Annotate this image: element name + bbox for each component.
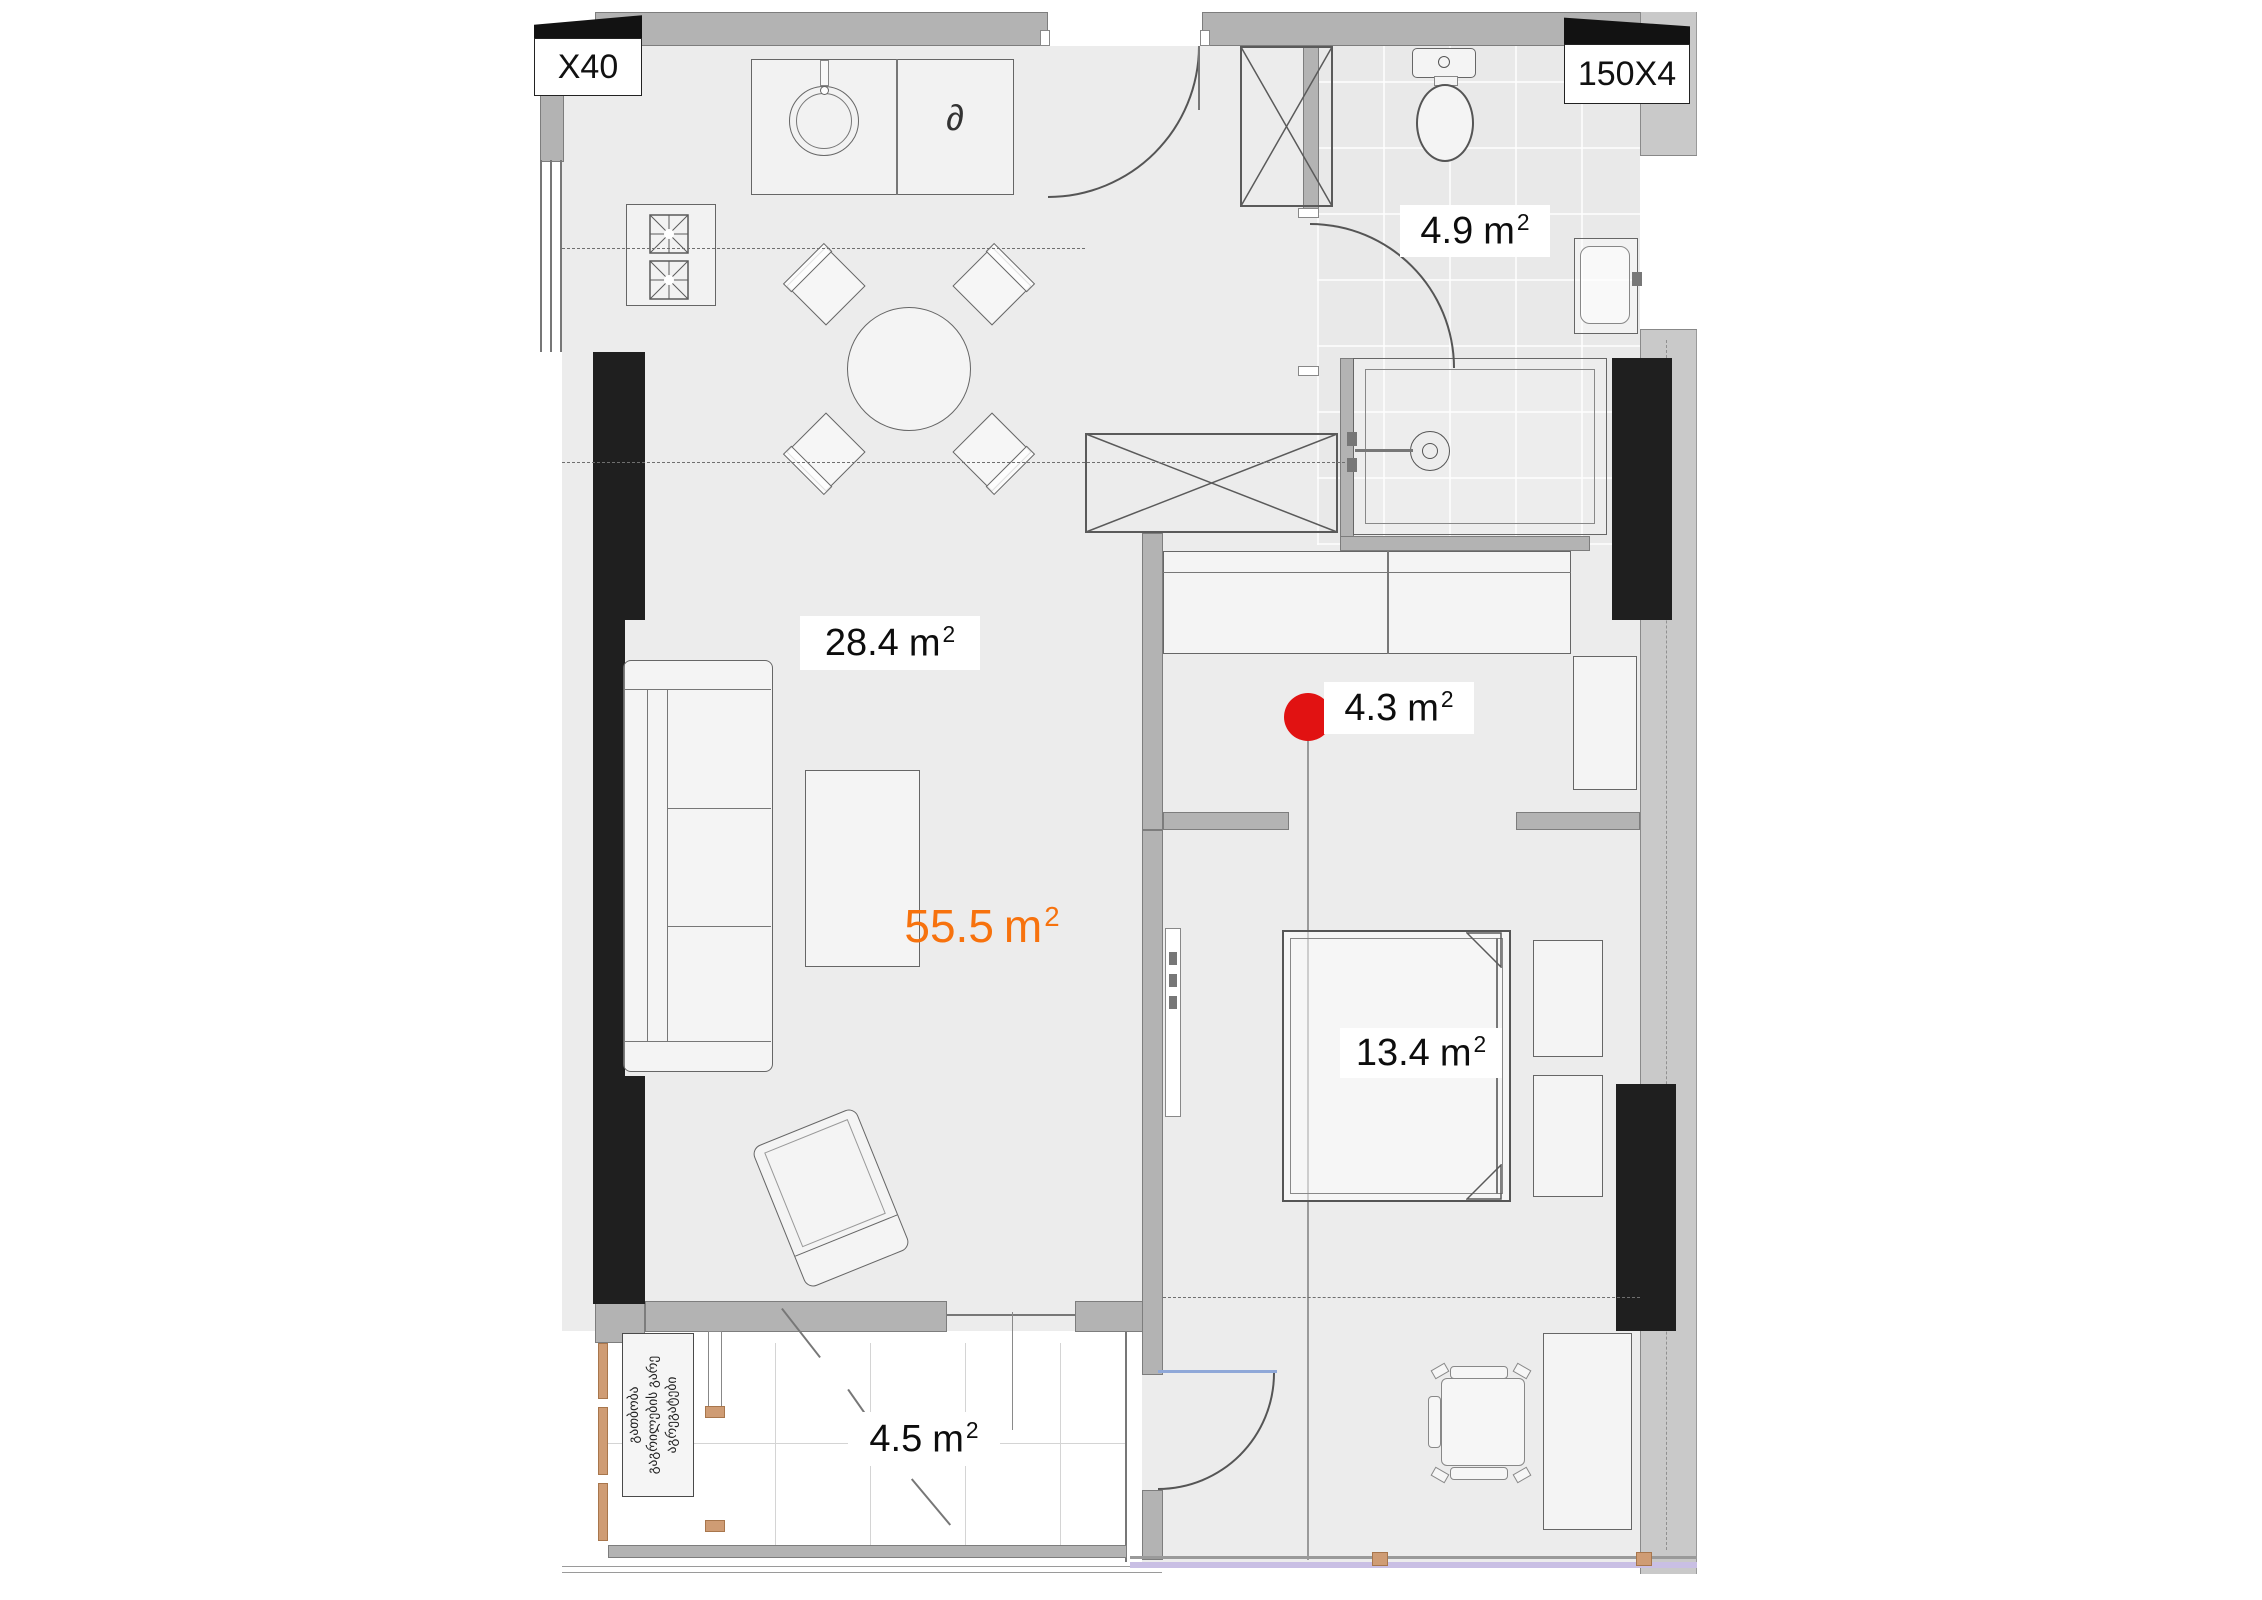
- wood-fill: [1372, 1552, 1388, 1566]
- balcony-note-text: გათბობა გაგრილების გარე აგრეგატები: [625, 1336, 691, 1494]
- area-unit: m2: [932, 1417, 978, 1462]
- room-label-living: 28.4 m2: [800, 616, 980, 670]
- unit-symbol: m: [1004, 900, 1042, 952]
- builtin-closet-icon: [1085, 433, 1338, 533]
- office-chair-seat: [1441, 1378, 1525, 1466]
- window-label-left: X40: [534, 38, 642, 96]
- area-unit: m2: [1407, 686, 1453, 731]
- area-value: 4.5: [869, 1418, 922, 1461]
- unit-symbol: m: [1483, 210, 1515, 252]
- wall-bedroom-left-lower: [1142, 1490, 1163, 1560]
- unit-symbol: m: [909, 622, 941, 664]
- area-unit: m2: [1440, 1031, 1486, 1076]
- shower-tray-inner: [1365, 369, 1595, 524]
- wall-hall-left: [1142, 533, 1163, 830]
- note-line: აგრეგატები: [663, 1336, 682, 1494]
- balcony-grid-line: [1060, 1343, 1061, 1545]
- wood-fill: [1636, 1552, 1652, 1566]
- window-label-right-text: 150X4: [1578, 55, 1676, 94]
- sofa-line: [667, 808, 771, 809]
- tv-mark: [1169, 952, 1177, 965]
- washbasin-tap-icon: [1632, 272, 1642, 286]
- wood-fill: [598, 1407, 608, 1475]
- bedroom-center-dashline: [1163, 1297, 1640, 1298]
- toilet-bowl: [1416, 84, 1474, 162]
- wardrobe-row: [1163, 551, 1571, 654]
- balcony-column-cap: [705, 1520, 725, 1532]
- wood-fill: [705, 1406, 725, 1418]
- entry-door-leaf: [1198, 46, 1200, 110]
- hall-cabinet: [1573, 656, 1637, 790]
- total-area-text: 55.5 m2: [904, 899, 1059, 953]
- balcony-door-slider: [947, 1314, 1075, 1316]
- right-window-opening: [1640, 155, 1697, 330]
- balcony-column: [708, 1331, 722, 1415]
- balcony-column-cap: [705, 1406, 725, 1418]
- wall-top-left: [595, 12, 1048, 46]
- center-dashline: [562, 462, 1345, 463]
- ventilation-shaft-icon: [1240, 46, 1333, 207]
- room-label-hall: 4.3 m2: [1324, 682, 1474, 734]
- balcony-railing-lines: [562, 1566, 1162, 1573]
- office-chair-armrest: [1450, 1467, 1508, 1480]
- bedroom-window-sill: [1130, 1562, 1697, 1568]
- dimension-line: [1012, 1312, 1013, 1430]
- wall-shower-left: [1340, 358, 1354, 550]
- sofa-line: [667, 690, 668, 1041]
- sofa-line: [625, 1041, 771, 1042]
- sill-fill: [1130, 1562, 1697, 1568]
- shower-valve: [1347, 458, 1357, 472]
- center-dashline: [562, 248, 1085, 249]
- total-area-label: 55.5 m2: [872, 896, 1092, 956]
- bed-fold-corner-icon: [1466, 932, 1502, 968]
- black-wall-left-upper: [593, 352, 645, 620]
- left-window-line: [550, 160, 552, 352]
- sill-wood-post: [1636, 1552, 1652, 1566]
- wood-fill: [705, 1520, 725, 1532]
- wardrobe-rail-line: [1163, 572, 1571, 573]
- tv-mark: [1169, 996, 1177, 1009]
- area-value: 28.4: [825, 622, 899, 665]
- room-label-bedroom: 13.4 m2: [1340, 1028, 1502, 1078]
- balcony-edge-line: [1125, 1331, 1127, 1562]
- shower-drain-center: [1422, 443, 1438, 459]
- unit-symbol: m: [932, 1418, 964, 1460]
- wall-living-bottom-right: [1075, 1301, 1143, 1332]
- room-label-balcony: 4.5 m2: [848, 1412, 1000, 1466]
- sofa-line: [667, 926, 771, 927]
- desk: [1543, 1333, 1632, 1530]
- washbasin-inner: [1580, 246, 1630, 324]
- floor-plan-canvas: ∂: [0, 0, 2262, 1600]
- toilet-button: [1438, 56, 1450, 68]
- unit-symbol: m: [1407, 687, 1439, 729]
- area-unit: m2: [909, 621, 955, 666]
- black-wall-left-middle: [593, 620, 625, 1076]
- unit-sup: 2: [1044, 901, 1059, 932]
- nightstand: [1533, 1075, 1603, 1197]
- kitchen-tap-dot: [820, 86, 829, 95]
- bed-fold-corner-icon: [1466, 1164, 1502, 1200]
- area-value: 4.9: [1420, 210, 1473, 253]
- note-line: გათბობა: [625, 1336, 644, 1494]
- left-window-line: [540, 160, 542, 352]
- sofa: [623, 660, 773, 1072]
- area-value: 55.5: [904, 899, 994, 953]
- wall-bathroom-bottom: [1340, 536, 1590, 551]
- left-window-line: [560, 160, 562, 352]
- wardrobe-divider: [1387, 551, 1389, 654]
- room-label-bathroom: 4.9 m2: [1400, 205, 1550, 257]
- black-wall-left-lower: [593, 1076, 645, 1304]
- area-value: 4.3: [1344, 687, 1397, 730]
- window-label-right: 150X4: [1564, 44, 1690, 104]
- shower-arm: [1355, 449, 1413, 452]
- office-chair-back: [1428, 1396, 1441, 1448]
- stove-burner-icon: [649, 260, 689, 300]
- unit-sup: 2: [1441, 686, 1454, 712]
- area-value: 13.4: [1356, 1032, 1430, 1075]
- wood-fill: [598, 1343, 608, 1399]
- wall-hall-bottom-left: [1163, 812, 1289, 830]
- entry-door-jamb: [1040, 30, 1050, 46]
- nightstand: [1533, 940, 1603, 1057]
- kitchen-tap-icon: [820, 60, 829, 86]
- bathroom-door-jamb: [1298, 208, 1319, 218]
- tv-mark: [1169, 974, 1177, 987]
- balcony-wood-post: [598, 1407, 608, 1475]
- balcony-wood-post: [598, 1343, 608, 1399]
- entry-door-jamb: [1200, 30, 1210, 46]
- window-label-left-text: X40: [558, 48, 619, 87]
- unit-sup: 2: [1473, 1031, 1486, 1057]
- unit-sup: 2: [966, 1417, 979, 1443]
- sofa-line: [647, 690, 648, 1041]
- bedroom-window-line: [1130, 1556, 1697, 1559]
- sill-wood-post: [1372, 1552, 1388, 1566]
- area-unit: m2: [1483, 209, 1529, 254]
- black-wall-right-lower: [1616, 1084, 1676, 1331]
- unit-symbol: m: [1440, 1032, 1472, 1074]
- unit-sup: 2: [1517, 209, 1530, 235]
- wall-hall-bottom-right: [1516, 812, 1640, 830]
- office-chair-armrest: [1450, 1366, 1508, 1379]
- unit-sup: 2: [942, 621, 955, 647]
- wall-left-stub: [540, 88, 564, 162]
- dining-table: [847, 307, 971, 431]
- wall-bedroom-left-upper: [1142, 830, 1163, 1375]
- balcony-grid-line: [775, 1343, 776, 1545]
- balcony-wood-post: [598, 1483, 608, 1541]
- appliance-glyph: ∂: [946, 97, 964, 139]
- area-unit: m2: [1004, 899, 1060, 953]
- wood-fill: [598, 1483, 608, 1541]
- black-wall-right-upper: [1612, 358, 1672, 620]
- note-line: გაგრილების გარე: [644, 1336, 663, 1494]
- appliance-symbol: ∂: [896, 59, 1014, 177]
- shower-valve: [1347, 432, 1357, 446]
- balcony-railing: [608, 1545, 1127, 1558]
- kitchen-sink-inner: [796, 93, 852, 149]
- balcony-note: გათბობა გაგრილების გარე აგრეგატები: [622, 1333, 694, 1497]
